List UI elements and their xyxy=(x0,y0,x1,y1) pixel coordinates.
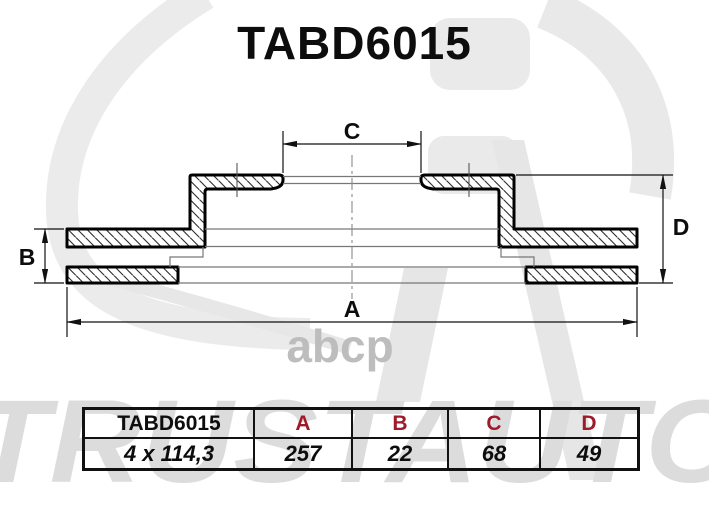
part-number-cell: TABD6015 xyxy=(84,409,255,439)
value-a: 257 xyxy=(254,438,352,470)
dimension-label-d: D xyxy=(673,214,690,240)
col-header-d: D xyxy=(540,409,639,439)
section-bottom-right xyxy=(526,267,637,283)
value-c: 68 xyxy=(448,438,540,470)
watermark-abcp-text: abcp xyxy=(286,320,393,372)
col-header-c: C xyxy=(448,409,540,439)
value-b: 22 xyxy=(352,438,448,470)
dimension-label-a: A xyxy=(344,296,361,322)
spec-table: TABD6015 A B C D 4 x 114,3 257 22 68 49 xyxy=(82,407,640,471)
spec-values-row: 4 x 114,3 257 22 68 49 xyxy=(84,438,639,470)
value-d: 49 xyxy=(540,438,639,470)
col-header-b: B xyxy=(352,409,448,439)
dimension-label-b: B xyxy=(19,244,36,270)
section-left xyxy=(67,175,283,247)
col-header-a: A xyxy=(254,409,352,439)
section-bottom-left xyxy=(67,267,178,283)
dimension-label-c: C xyxy=(344,118,361,144)
part-number-title: TABD6015 xyxy=(0,16,709,70)
bolt-pattern-cell: 4 x 114,3 xyxy=(84,438,255,470)
spec-header-row: TABD6015 A B C D xyxy=(84,409,639,439)
